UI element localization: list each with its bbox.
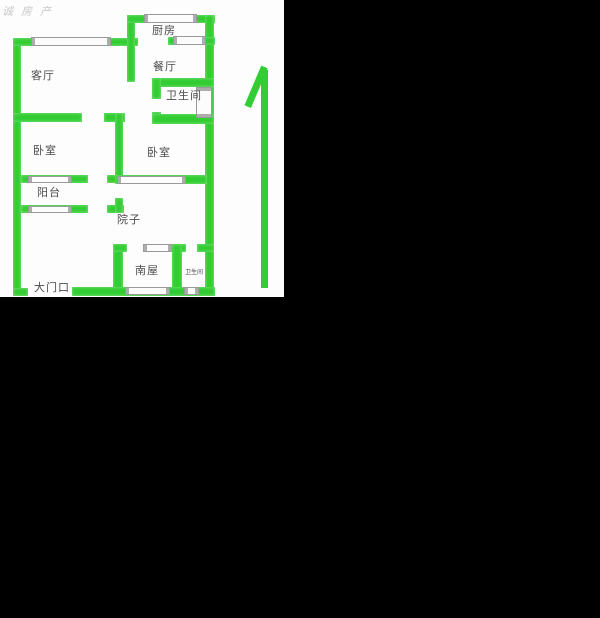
room-label-small-bathroom: 卫生间: [185, 270, 203, 276]
wall-bathroom-left-upper: [152, 78, 161, 99]
screenshot-background: 诚房产: [0, 0, 600, 618]
north-arrow-shaft: [261, 70, 268, 288]
wall-kitchen-left: [127, 15, 135, 82]
wall-bottom-left: [13, 288, 28, 296]
room-label-courtyard: 院子: [117, 215, 141, 226]
room-label-bedroom-right: 卧室: [147, 148, 171, 159]
window-kitchen-pass: [173, 36, 206, 45]
window-bedroom2-bottom: [117, 176, 186, 184]
window-southroom-top: [143, 244, 172, 252]
window-southroom-bottom: [125, 287, 170, 295]
room-label-kitchen: 厨房: [152, 26, 176, 37]
window-kitchen-top: [144, 14, 197, 23]
room-label-living-room: 客厅: [31, 71, 55, 82]
window-smallbath-bottom: [184, 287, 199, 295]
floorplan-canvas: 诚房产: [0, 0, 284, 297]
room-label-south-room: 南屋: [135, 266, 159, 277]
window-balcony-bottom: [28, 206, 72, 213]
wall-left: [13, 38, 21, 296]
wall-mid-vertical: [115, 113, 123, 183]
window-bedroom1-balcony: [28, 176, 72, 183]
wall-bathroom-top: [152, 78, 214, 87]
room-label-entrance: 大门口: [34, 283, 70, 294]
room-label-balcony: 阳台: [37, 188, 61, 199]
wall-right: [205, 15, 214, 296]
wall-living-bottom: [13, 113, 82, 122]
wall-mid-vertical-lower: [115, 198, 123, 213]
wall-southroom-left-cap: [113, 244, 127, 252]
window-living-top: [31, 37, 111, 46]
room-label-bedroom-left: 卧室: [33, 146, 57, 157]
room-label-dining-room: 餐厅: [153, 62, 177, 73]
watermark-text: 诚房产: [2, 3, 59, 19]
wall-southroom-right-stub: [197, 244, 214, 252]
room-label-bathroom: 卫生间: [166, 91, 202, 102]
